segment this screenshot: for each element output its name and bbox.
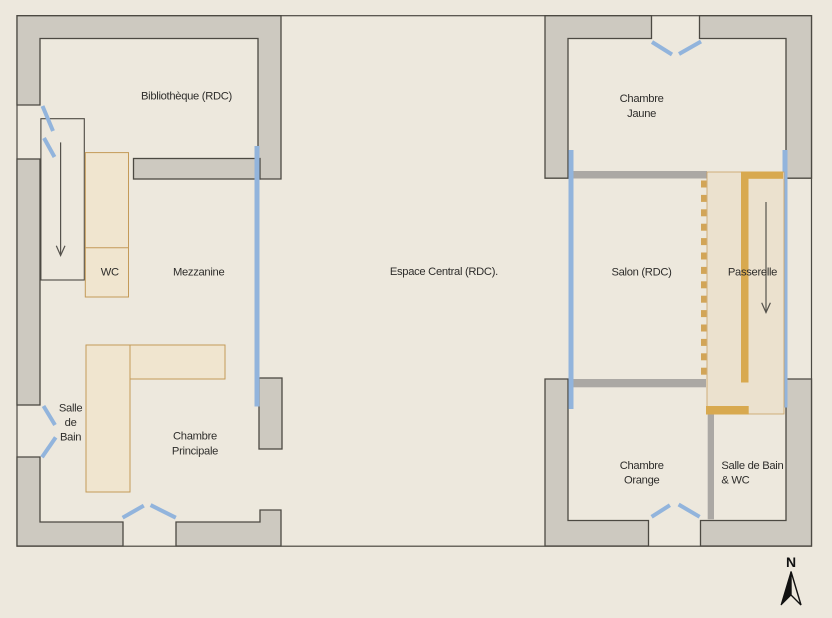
svg-text:Chambre: Chambre	[173, 431, 217, 443]
svg-text:Salle de Bain: Salle de Bain	[721, 460, 783, 472]
svg-text:Bibliothèque (RDC): Bibliothèque (RDC)	[141, 90, 233, 102]
svg-text:Principale: Principale	[172, 446, 218, 458]
svg-text:de: de	[65, 417, 77, 429]
svg-text:N: N	[786, 554, 796, 570]
svg-text:Espace Central (RDC).: Espace Central (RDC).	[390, 266, 498, 278]
svg-text:Chambre: Chambre	[620, 460, 664, 472]
svg-text:Bain: Bain	[60, 432, 81, 444]
svg-text:Salle: Salle	[59, 403, 82, 415]
svg-text:Chambre: Chambre	[620, 93, 664, 105]
svg-text:Orange: Orange	[624, 475, 660, 487]
svg-text:WC: WC	[101, 267, 119, 279]
svg-text:Passerelle: Passerelle	[728, 266, 777, 278]
svg-text:Salon (RDC): Salon (RDC)	[611, 266, 672, 278]
svg-text:Mezzanine: Mezzanine	[173, 267, 224, 279]
svg-text:Jaune: Jaune	[627, 108, 656, 120]
svg-text:& WC: & WC	[721, 475, 749, 487]
